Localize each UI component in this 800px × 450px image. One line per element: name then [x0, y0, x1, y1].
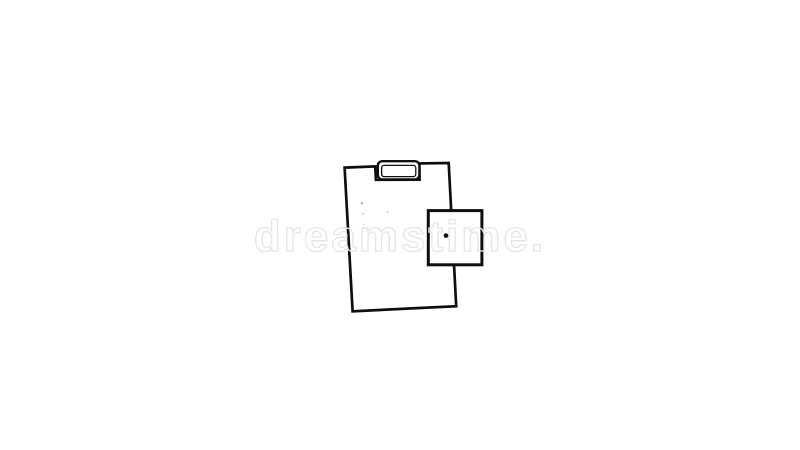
- clipboard-doodle-icon: [0, 0, 800, 450]
- stock-image-canvas: dreamstime.: [0, 0, 800, 450]
- square-note-outline: [428, 211, 482, 265]
- square-note-dot: [444, 233, 449, 238]
